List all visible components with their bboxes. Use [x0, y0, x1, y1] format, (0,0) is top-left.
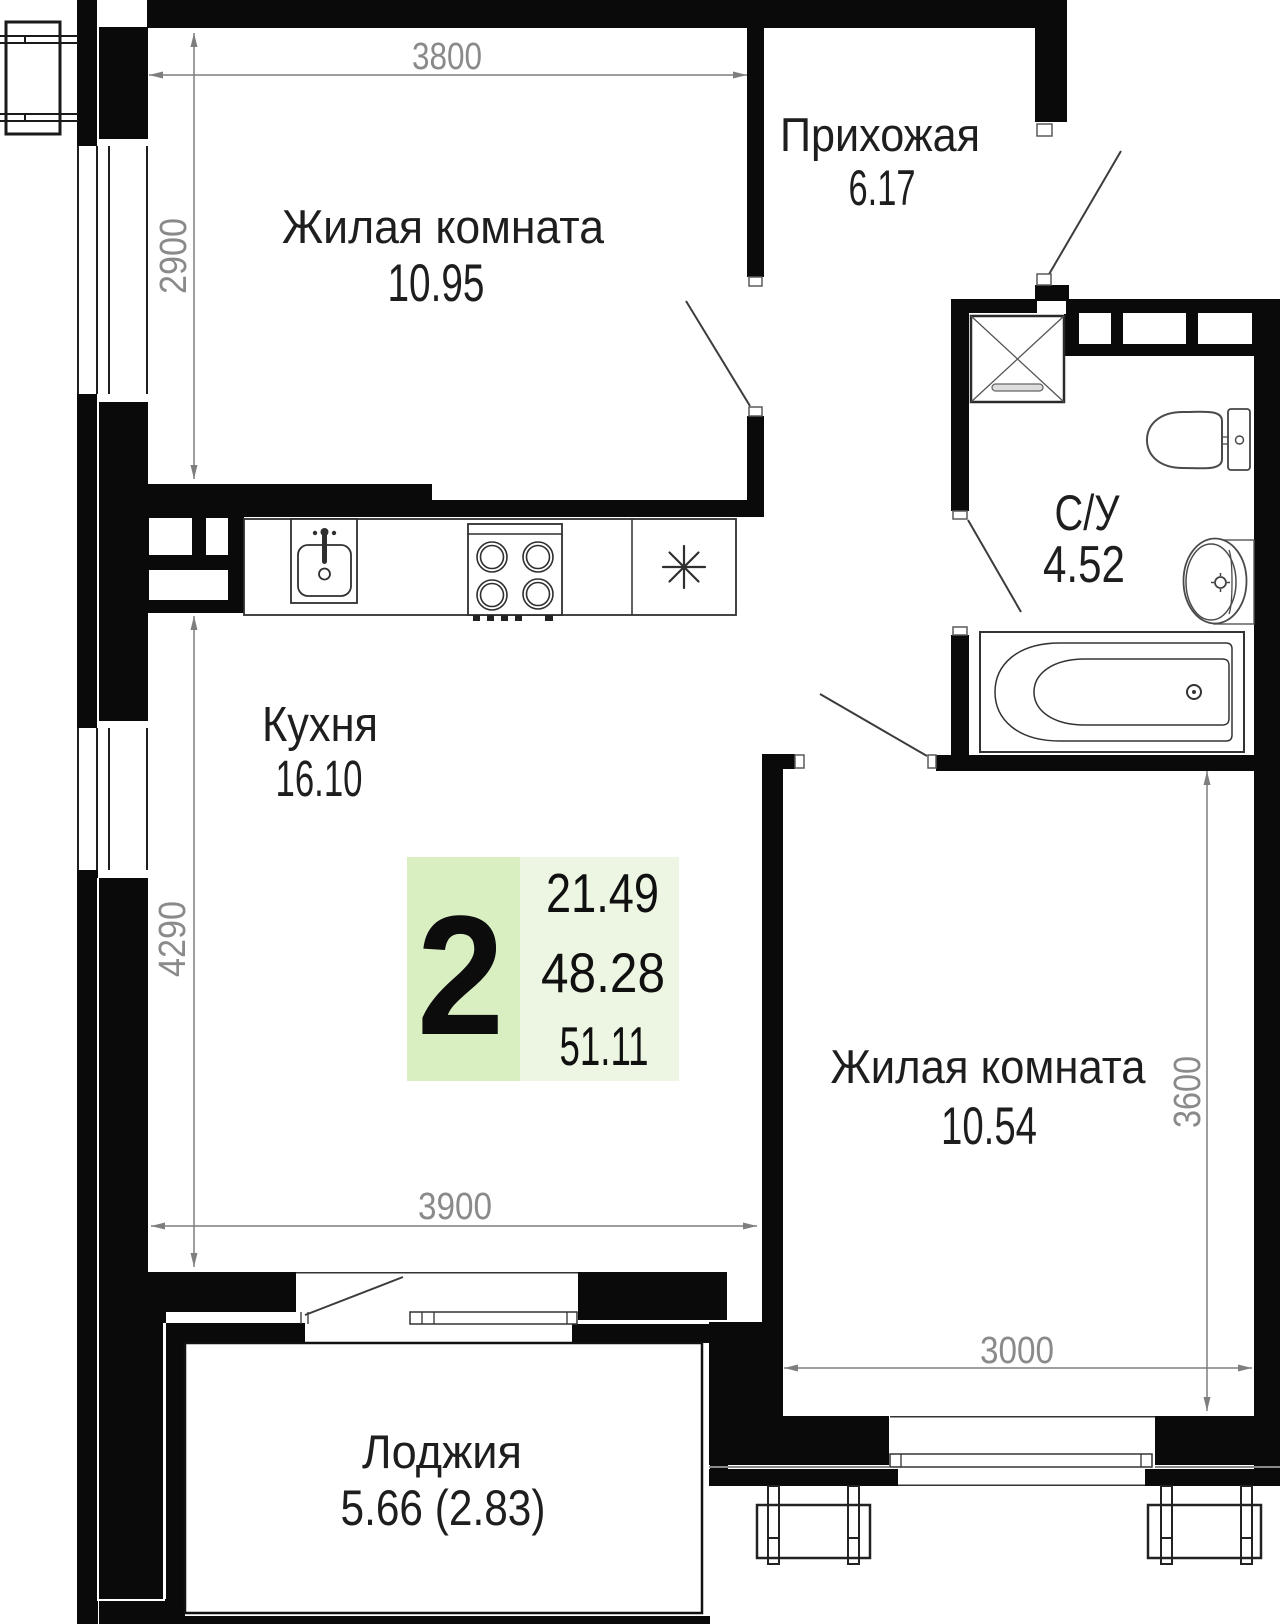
svg-text:С/У: С/У	[1055, 485, 1120, 541]
svg-text:Жилая комната: Жилая комната	[282, 200, 605, 253]
svg-text:2: 2	[417, 881, 504, 1071]
svg-text:Прихожая: Прихожая	[780, 108, 980, 161]
svg-text:4.52: 4.52	[1043, 536, 1125, 594]
svg-text:5.66 (2.83): 5.66 (2.83)	[341, 1480, 546, 1536]
svg-text:2900: 2900	[153, 218, 195, 294]
svg-text:Лоджия: Лоджия	[362, 1425, 522, 1478]
svg-text:3900: 3900	[418, 1186, 492, 1228]
svg-text:48.28: 48.28	[541, 941, 665, 1004]
svg-text:10.54: 10.54	[941, 1097, 1037, 1156]
svg-text:10.95: 10.95	[388, 254, 485, 313]
svg-text:21.49: 21.49	[546, 862, 659, 924]
svg-text:3600: 3600	[1167, 1056, 1209, 1128]
svg-text:6.17: 6.17	[849, 160, 916, 216]
svg-text:4290: 4290	[152, 901, 194, 977]
svg-text:3800: 3800	[412, 36, 482, 78]
svg-text:3000: 3000	[980, 1330, 1054, 1372]
svg-text:Жилая комната: Жилая комната	[831, 1040, 1147, 1093]
svg-text:16.10: 16.10	[276, 750, 363, 807]
svg-text:51.11: 51.11	[560, 1015, 649, 1077]
svg-text:Кухня: Кухня	[262, 698, 378, 752]
